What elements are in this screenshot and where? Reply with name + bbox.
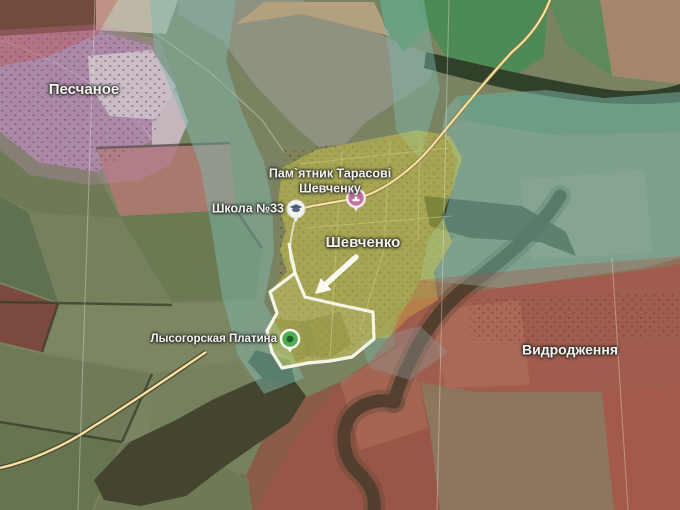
label-school-33: Школа №33 — [212, 202, 284, 217]
label-shevchenko: Шевченко — [326, 234, 401, 252]
label-vidrodzhennya: Видродження — [522, 342, 618, 359]
school-marker[interactable] — [285, 198, 307, 224]
label-monument-taras-shevchenko: Пам`ятник Тарасові Шевченку — [269, 167, 391, 197]
label-lysogorska-dam: Лысогорская Платина — [151, 333, 277, 347]
map-viewport[interactable]: Песчаное Пам`ятник Тарасові Шевченку Шко… — [0, 0, 680, 510]
satellite-map-canvas — [0, 0, 680, 510]
dam-marker[interactable] — [279, 328, 301, 354]
dam-icon — [287, 336, 294, 343]
label-peschanoye: Песчаное — [49, 81, 120, 99]
contested-zone-east — [420, 90, 680, 288]
